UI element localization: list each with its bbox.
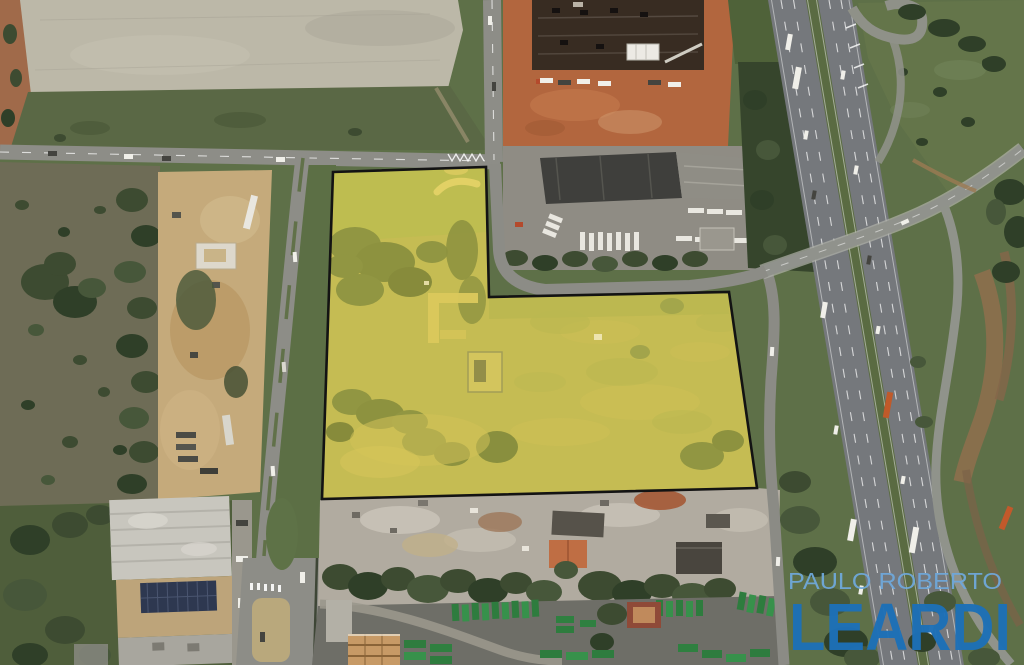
satellite-screenshot: PAULO ROBERTO LEARDI xyxy=(0,0,1024,665)
grass-strip-top xyxy=(10,86,492,150)
parking-lot xyxy=(6,0,463,99)
north-road xyxy=(488,0,496,162)
satellite-map: PAULO ROBERTO LEARDI xyxy=(0,0,1024,665)
dirt-yard xyxy=(158,170,272,500)
watermark-line2: LEARDI xyxy=(789,590,1011,665)
scrub-field-left xyxy=(0,162,161,506)
watermark: PAULO ROBERTO LEARDI xyxy=(788,568,1011,665)
truck-depot xyxy=(502,146,772,272)
factory-zone xyxy=(0,496,252,665)
scrapyard xyxy=(318,488,780,609)
factory-building xyxy=(109,496,237,665)
tan-building xyxy=(348,634,400,665)
